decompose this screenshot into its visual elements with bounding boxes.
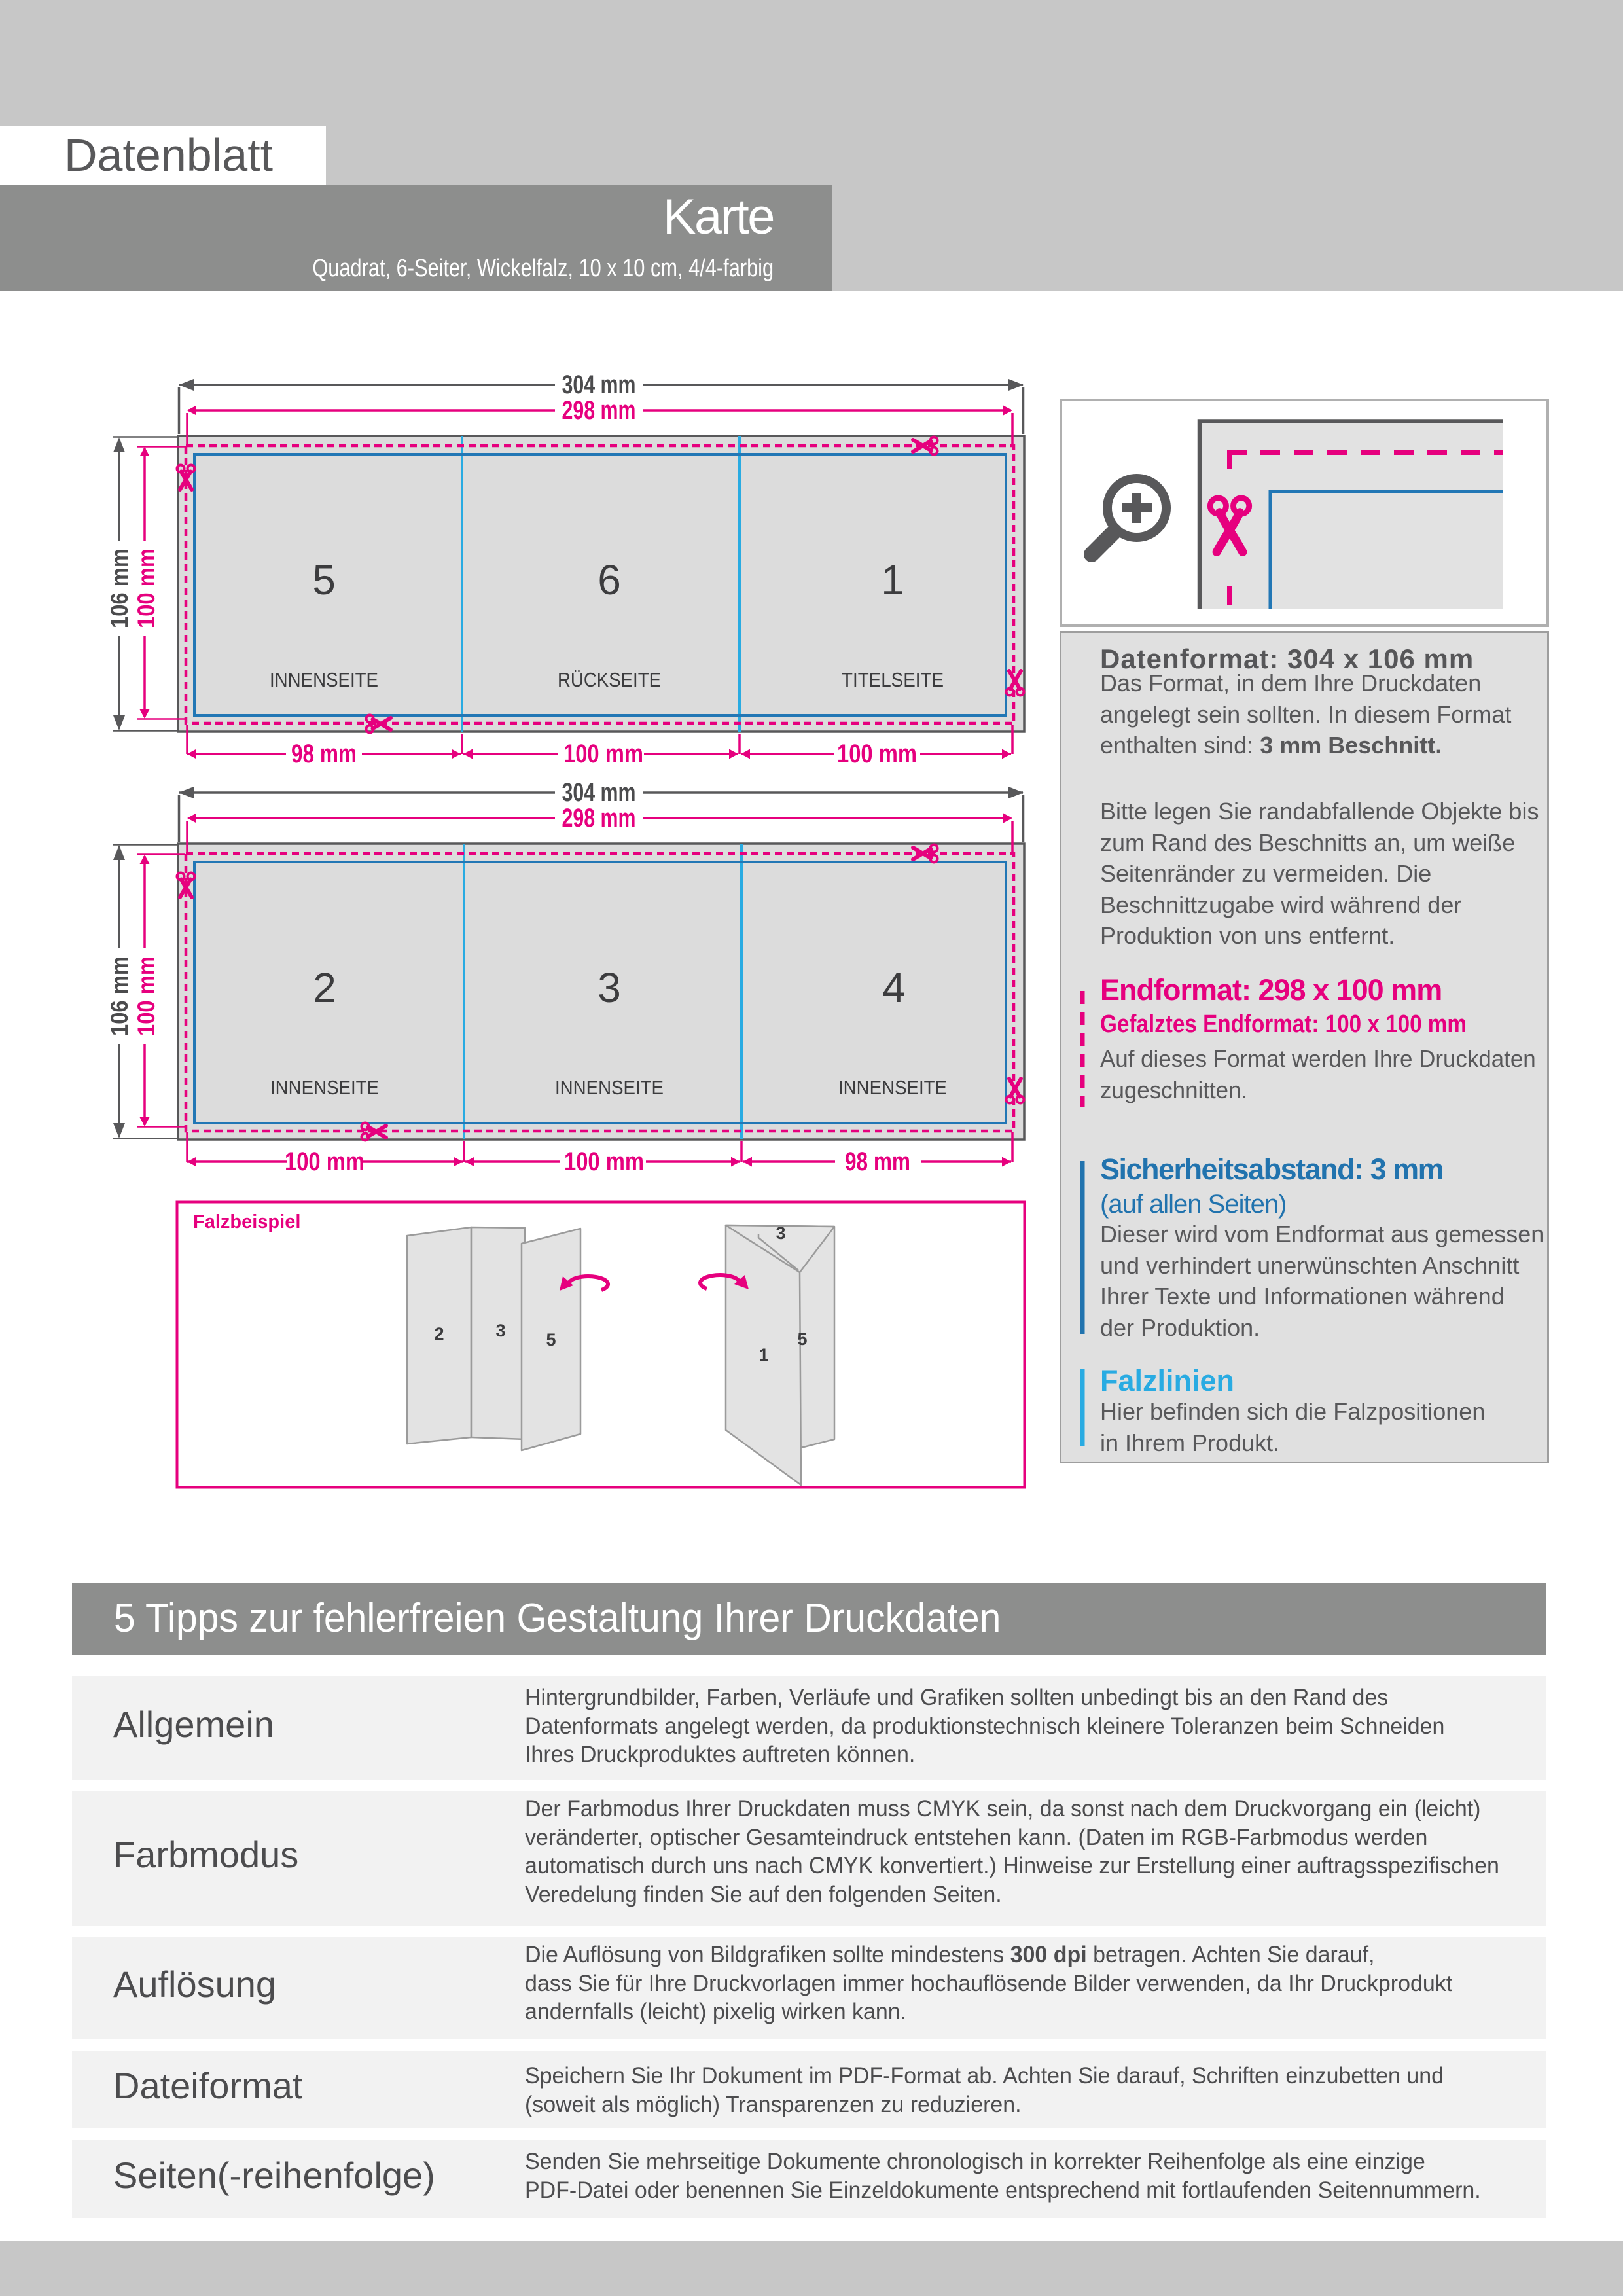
svg-text:1: 1 (881, 556, 904, 603)
svg-text:5: 5 (546, 1330, 556, 1350)
svg-text:100 mm: 100 mm (133, 956, 160, 1036)
svg-text:6: 6 (597, 556, 621, 603)
svg-text:106 mm: 106 mm (106, 548, 133, 628)
svg-text:3: 3 (495, 1321, 505, 1340)
svg-text:1: 1 (758, 1345, 768, 1365)
svg-text:4: 4 (882, 964, 906, 1011)
svg-text:Falzbeispiel: Falzbeispiel (193, 1211, 300, 1232)
svg-text:100 mm: 100 mm (564, 1147, 644, 1176)
svg-text:100 mm: 100 mm (837, 740, 917, 768)
svg-text:100 mm: 100 mm (563, 740, 643, 768)
svg-text:106 mm: 106 mm (106, 956, 133, 1036)
svg-text:INNENSEITE: INNENSEITE (838, 1076, 947, 1099)
svg-text:2: 2 (313, 964, 336, 1011)
svg-text:3: 3 (776, 1223, 785, 1243)
svg-text:98 mm: 98 mm (291, 740, 357, 768)
svg-text:5: 5 (312, 556, 336, 603)
svg-text:2: 2 (434, 1324, 444, 1344)
svg-text:5: 5 (797, 1329, 807, 1349)
svg-text:INNENSEITE: INNENSEITE (555, 1076, 664, 1099)
svg-text:100 mm: 100 mm (133, 548, 160, 628)
svg-text:RÜCKSEITE: RÜCKSEITE (558, 668, 661, 691)
svg-text:98 mm: 98 mm (845, 1147, 910, 1176)
svg-text:INNENSEITE: INNENSEITE (270, 1076, 379, 1099)
svg-text:TITELSEITE: TITELSEITE (842, 668, 944, 691)
svg-text:3: 3 (597, 964, 621, 1011)
svg-text:304 mm: 304 mm (562, 778, 636, 807)
svg-text:100 mm: 100 mm (285, 1147, 365, 1176)
svg-text:INNENSEITE: INNENSEITE (270, 668, 378, 691)
svg-text:304 mm: 304 mm (562, 370, 636, 399)
svg-text:298 mm: 298 mm (562, 804, 636, 833)
svg-text:298 mm: 298 mm (562, 396, 636, 425)
